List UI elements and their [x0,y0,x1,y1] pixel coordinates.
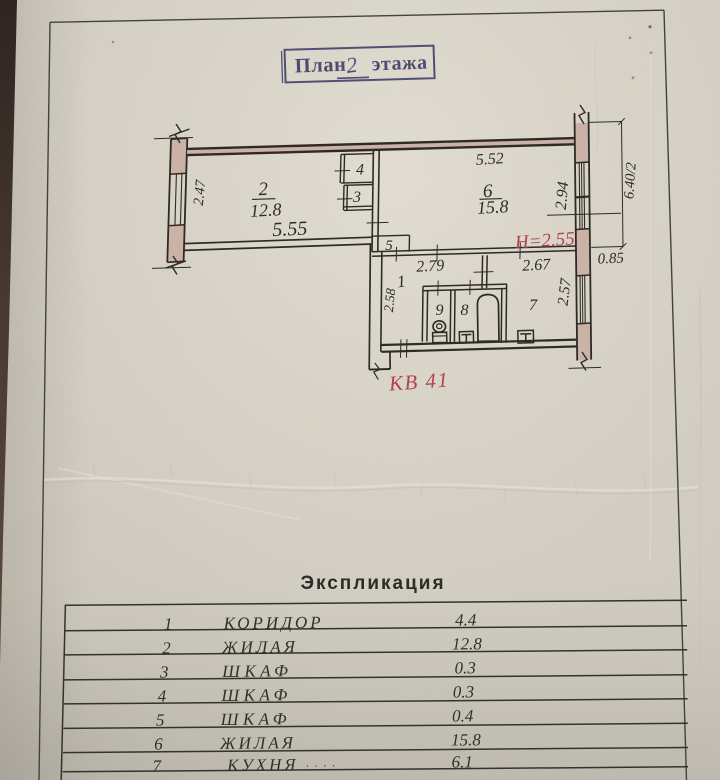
svg-text:4.4: 4.4 [455,610,477,629]
svg-text:6.40/2: 6.40/2 [621,162,640,200]
svg-text:КОРИДОР: КОРИДОР [223,613,324,633]
svg-text:2: 2 [162,638,171,657]
svg-text:Н=2.55: Н=2.55 [513,228,575,253]
svg-text:2.67: 2.67 [522,256,552,274]
svg-text:Экспликация: Экспликация [300,573,445,594]
svg-text:4: 4 [356,162,364,179]
svg-text:0.85: 0.85 [597,250,625,267]
svg-text:9: 9 [436,302,444,319]
svg-text:12.8: 12.8 [249,199,282,221]
svg-text:2.47: 2.47 [191,179,210,207]
svg-text:8: 8 [461,302,469,319]
svg-text:0.4: 0.4 [452,706,474,725]
svg-text:ШКАФ: ШКАФ [221,661,292,681]
svg-text:12.8: 12.8 [452,634,482,653]
svg-text:5: 5 [385,238,393,254]
svg-text:ЖИЛАЯ: ЖИЛАЯ [219,733,296,753]
svg-text:5: 5 [156,711,165,730]
svg-text:ЖИЛАЯ: ЖИЛАЯ [221,637,298,657]
svg-text:2.58: 2.58 [381,287,398,312]
svg-text:ШКАФ: ШКАФ [220,709,291,729]
svg-text:3: 3 [352,189,361,206]
svg-text:6.1: 6.1 [451,752,472,771]
svg-text:1: 1 [164,614,173,633]
svg-text:2: 2 [258,179,269,200]
svg-text:7: 7 [529,297,538,314]
svg-text:План: План [294,54,346,78]
svg-text:3: 3 [159,663,169,682]
svg-text:5.52: 5.52 [475,150,504,169]
svg-text:КУХНЯ: КУХНЯ [226,755,299,775]
svg-text:0.3: 0.3 [454,658,475,677]
svg-text:0.3: 0.3 [453,682,474,701]
svg-text:2.79: 2.79 [416,257,445,275]
svg-text:6: 6 [154,735,163,754]
svg-text:....: .... [306,757,341,769]
svg-text:этажа: этажа [371,52,427,76]
svg-text:5.55: 5.55 [272,218,308,242]
svg-text:ШКАФ: ШКАФ [220,685,291,705]
svg-text:2.94: 2.94 [553,181,572,210]
svg-text:4: 4 [158,687,167,706]
svg-text:2.57: 2.57 [555,276,575,306]
svg-text:15.8: 15.8 [451,730,481,749]
svg-text:КВ 41: КВ 41 [387,367,450,395]
